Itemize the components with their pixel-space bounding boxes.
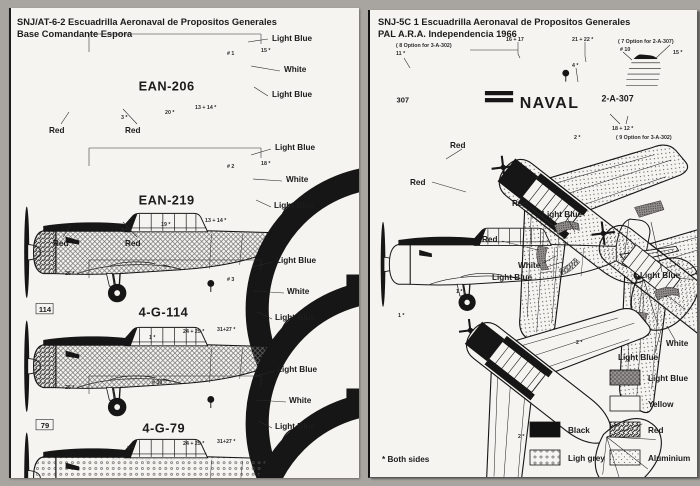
tail-code: 2-A-307 <box>601 93 633 103</box>
swatch-aluminium <box>610 450 640 465</box>
decal-note: 31+27 * <box>217 439 236 445</box>
decal-note: # 30 <box>152 380 162 386</box>
tail-color-label: Light Blue <box>277 365 317 374</box>
tail-color-label: White <box>286 175 309 184</box>
fuselage-code: EAN-219 <box>139 193 195 208</box>
decal-note: 1 * <box>149 335 156 341</box>
decal-note: 25 * <box>65 385 75 391</box>
decal-note: 25 * <box>65 271 75 277</box>
decal-note: 3 * <box>121 228 128 234</box>
decal-note: # 3 <box>227 277 234 283</box>
plan-color-label: Red <box>482 235 497 244</box>
naval-titles: NAVAL <box>520 95 580 112</box>
fuselage-code: 4-G-114 <box>139 305 189 320</box>
plan-color-label: Light Blue <box>542 210 582 219</box>
decal-note: 4 * <box>572 63 579 69</box>
plan-color-label: Light Blue <box>492 273 532 282</box>
tail-color-label: Light Blue <box>275 422 315 431</box>
plan-note: 2 * <box>574 135 581 141</box>
right-page-title-line1: SNJ-5C 1 Escuadrilla Aeronaval de Propos… <box>378 17 630 27</box>
decal-note: 18 * <box>261 161 271 167</box>
df-loop-antenna <box>207 280 214 292</box>
fuselage-stripe-top <box>485 91 513 95</box>
plan-note: 1 * <box>456 289 463 295</box>
fuselage-stripe-bottom <box>485 98 513 102</box>
tail-color-label: Light Blue <box>272 90 312 99</box>
plan-color-label: Red <box>410 178 425 187</box>
swatch-red <box>610 422 640 437</box>
swatch-light-blue <box>610 370 640 385</box>
plan-note: 2 * <box>518 434 525 440</box>
decal-note: # 10 <box>620 47 630 53</box>
decal-note: # 1 <box>227 51 234 57</box>
decal-note: 19 * <box>161 222 171 228</box>
decal-note: 21 + 22 * <box>572 37 594 43</box>
tail-color-label: Light Blue <box>275 143 315 152</box>
tail-color-label: White <box>287 287 310 296</box>
decal-note: 3 * <box>127 446 134 452</box>
left-page: SNJ/AT-6-2 Escuadrilla Aeronaval de Prop… <box>9 8 359 478</box>
decal-note: 20 * <box>165 110 175 116</box>
plan-color-label: Red <box>450 141 465 150</box>
decal-note: 13 + 14 * <box>195 105 217 111</box>
decal-note: 15 * <box>673 50 683 56</box>
right-page-drawing: SNJ-5C 1 Escuadrilla Aeronaval de Propos… <box>370 10 697 477</box>
df-loop-antenna <box>562 70 569 82</box>
tail-color-label: Light Blue <box>275 313 315 322</box>
plan-color-label: Red <box>512 199 527 208</box>
decal-note: 24 + 25 * <box>183 329 205 335</box>
tail-color-label: Light Blue <box>274 201 314 210</box>
decal-note: 15 * <box>261 48 271 54</box>
decal-note: 11 * <box>396 51 406 57</box>
plan-note: 2 * <box>576 340 583 346</box>
legend-label: Red <box>648 426 663 435</box>
red-label: Red <box>53 239 68 248</box>
df-loop-antenna <box>207 396 214 408</box>
plan-note: 1 * <box>398 313 405 319</box>
legend-label: Ligh grey <box>568 454 605 463</box>
decal-note: 13 + 14 * <box>205 218 227 224</box>
red-label: Red <box>125 239 140 248</box>
tail-color-label: White <box>289 396 312 405</box>
decal-note: 31+27 * <box>217 327 236 333</box>
nose-number: 307 <box>397 95 410 104</box>
red-label: Red <box>125 126 140 135</box>
tail-color-label: White <box>284 65 307 74</box>
plan-color-label: Light Blue <box>640 271 680 280</box>
decal-note: 16 + 17 <box>506 37 524 43</box>
legend-label: Aluminium <box>648 454 690 463</box>
right-page-title-line2: PAL A.R.A. Independencia 1966 <box>378 29 517 39</box>
tail-color-label: Light Blue <box>276 256 316 265</box>
plan-color-label: White <box>518 261 541 270</box>
decal-note: 3 * <box>121 115 128 121</box>
both-sides-note: * Both sides <box>382 455 430 464</box>
decal-note: ( 9 Option for 3-A-302) <box>616 135 672 141</box>
left-page-drawing: SNJ/AT-6-2 Escuadrilla Aeronaval de Prop… <box>11 8 359 478</box>
tail-color-label: Light Blue <box>272 34 312 43</box>
swatch-ligh-grey <box>530 450 560 465</box>
decal-note: # 2 <box>227 164 234 170</box>
nose-number: 79 <box>41 421 49 430</box>
right-page: SNJ-5C 1 Escuadrilla Aeronaval de Propos… <box>368 10 697 478</box>
decal-note: ( 8 Option for 3-A-302) <box>396 43 452 49</box>
swatch-black <box>530 422 560 437</box>
scanned-decal-instruction-sheet: SNJ/AT-6-2 Escuadrilla Aeronaval de Prop… <box>0 0 700 486</box>
fuselage-code: 4-G-79 <box>142 421 185 436</box>
fuselage-code: EAN-206 <box>139 79 195 94</box>
legend-label: Black <box>568 426 590 435</box>
legend-label: Light Blue <box>648 374 688 383</box>
decal-note: 24 + 25 * <box>183 441 205 447</box>
swatch-yellow <box>610 396 640 411</box>
legend-label: Yellow <box>648 400 674 409</box>
decal-note: ( 7 Option for 2-A-307) <box>618 39 674 45</box>
red-label: Red <box>49 126 64 135</box>
plan-color-label: Light Blue <box>618 353 658 362</box>
decal-note: 18 + 12 * <box>612 126 634 132</box>
left-page-title-line1: SNJ/AT-6-2 Escuadrilla Aeronaval de Prop… <box>17 17 277 27</box>
nose-number: 114 <box>39 305 52 314</box>
plan-color-label: White <box>666 339 689 348</box>
